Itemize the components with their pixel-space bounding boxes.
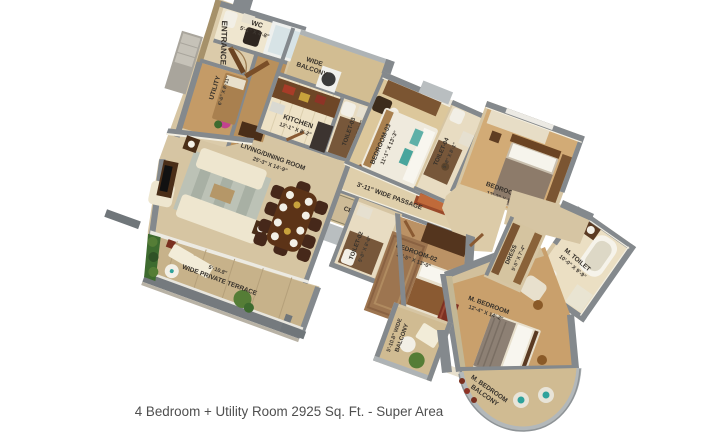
svg-text:ENTRANCE: ENTRANCE [218,20,229,65]
svg-text:4 Bedroom + Utility Room 2925: 4 Bedroom + Utility Room 2925 Sq. Ft. - … [135,404,444,419]
